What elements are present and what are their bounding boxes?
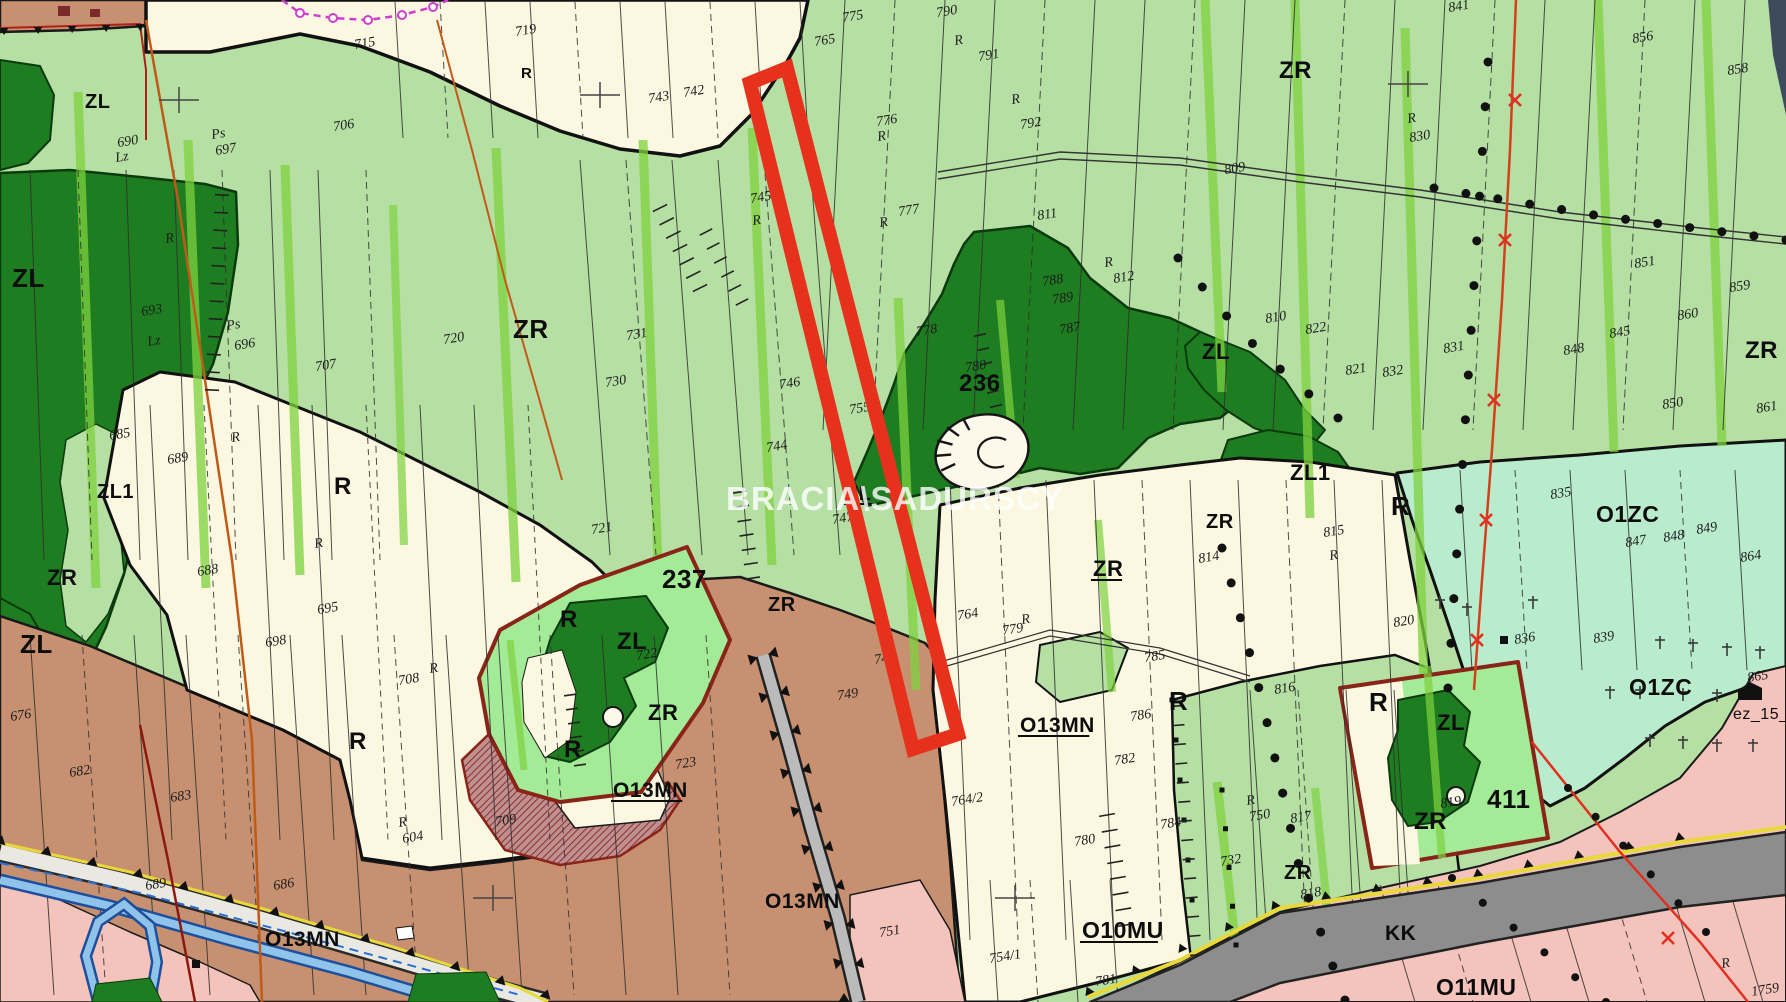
zone-code-label: KK [1385,922,1416,945]
hatch-tick [1180,820,1192,821]
tree-dots-vertical-right [1464,371,1473,380]
squares-patch-band [1223,826,1228,831]
hatch-tick [1186,897,1198,898]
tree-dots-vertical-right [1481,102,1490,111]
zone-code-label: ez_15_09 [1733,706,1786,723]
zone-code-label: R [521,65,532,82]
zone-code-label: R [1169,686,1188,716]
zone-code-label: 411 [1487,784,1530,814]
gas-line-node [329,14,337,22]
tree-dots-curve-right [1236,613,1245,622]
zone-code-label: O10MU [1082,917,1164,943]
tree-dots-path-topright [1557,205,1566,214]
tree-dots-vertical-right [1472,236,1481,245]
tree-dots-path-topright [1621,215,1630,224]
hatch-tick [212,248,226,249]
gas-line-node [429,3,437,11]
parcel-number-label: Ps [209,126,227,143]
tree-dots-path-topright [1653,219,1662,228]
tree-dots-pink-2 [1571,973,1579,981]
hatch-tick [1187,916,1199,917]
zone-code-label: R [1369,687,1388,717]
gas-line-node [364,16,372,24]
clearing-circle-symbol [603,707,623,727]
tree-dots-pink-2 [1448,874,1456,882]
hatch-tick [210,283,224,284]
hatch-tick [214,212,228,213]
zone-code-label: R [334,473,352,500]
tree-dots-curve-right [1227,578,1236,587]
tree-dots-pink-2 [1479,899,1487,907]
tree-dots-vertical-right [1461,415,1470,424]
squares-slope-band [1174,738,1179,743]
tree-dots-curve-right [1218,544,1227,553]
zone-code-label: O11MU [1436,974,1516,1000]
tree-dots-arc [1276,365,1285,374]
zone-code-label: ZR [1284,862,1312,884]
tree-dots-path-topright [1685,223,1694,232]
tree-dots-curve-right [1245,648,1254,657]
tree-dots-path-topright [1525,200,1534,209]
tree-dots-curve-right [1270,753,1279,762]
squares-patch-band [1234,943,1239,948]
tree-dots-vertical-right [1458,460,1467,469]
hatch-tick [1189,935,1201,936]
zone-code-label: O13MN [265,928,340,951]
hatch-tick [207,354,221,355]
hatch-tick [1183,859,1195,860]
tree-dots-arc [1304,389,1313,398]
parcel-number-label: Lz [113,149,130,166]
hatch-tick [208,336,222,337]
tree-dots-pink-1 [1564,784,1572,792]
zone-code-label: O13MN [1020,714,1095,737]
tree-dots-pink-1 [1647,870,1655,878]
zone-code-label: 236 [959,370,1001,397]
tree-dots-pink-1 [1702,928,1710,936]
parcel-number-label: Lz [145,333,162,350]
hatch-tick [210,301,224,302]
zone-code-label: ZR [47,565,77,590]
zone-code-label: ZR [1414,808,1447,835]
tree-dots-path-topright [1430,184,1439,193]
zone-code-label: R [564,736,582,763]
hatch-tick [206,372,220,373]
tree-dots-vertical-right [1469,281,1478,290]
tree-dots-pink-1 [1674,899,1682,907]
zone-code-label: ZL [617,628,647,655]
tree-dots-vertical-right [1455,505,1464,514]
zone-code-label: R [1391,491,1410,521]
tree-dots-curve-right [1316,928,1325,937]
hatch-tick [215,195,229,196]
tree-dots-vertical-right [1475,192,1484,201]
tree-dots-arc [1198,282,1207,291]
tree-dots-vertical-right [1444,684,1453,693]
zone-code-label: ZL1 [1290,460,1331,485]
hatch-tick [1184,878,1196,879]
hatch-tick [1178,801,1190,802]
zone-code-label: ZL [20,629,53,659]
tree-dots-path-topright [1461,189,1470,198]
hatch-tick [205,390,219,391]
hatch-tick [1172,725,1184,726]
map-canvas: 690LzPs697693Ps6966856896886956987077067… [0,0,1786,1002]
squares-patch-band [1220,788,1225,793]
hatch-tick [1177,782,1189,783]
tree-dots-path-topright [1493,194,1502,203]
hatch-tick [1181,840,1193,841]
zone-code-label: ZL1 [97,481,134,503]
zone-code-label: R [349,728,367,755]
bldg-topstrip-2 [90,9,100,17]
tree-dots-pink-2 [1510,924,1518,932]
tree-dots-vertical-right [1478,147,1487,156]
zone-code-label: O13MN [765,890,840,913]
bldg-black-2 [1500,636,1508,644]
gas-line-node [398,11,406,19]
tree-dots-arc [1248,339,1257,348]
zone-code-label: ZL [12,263,45,293]
zone-code-label: ZL [1202,339,1230,364]
tree-dots-curve-right [1263,718,1272,727]
zone-code-label: 237 [662,564,707,594]
zone-code-label: O1ZC [1629,674,1692,700]
squares-slope-band [1178,778,1183,783]
bldg-black-1 [192,960,200,968]
tree-dots-vertical-right [1484,58,1493,67]
hatch-tick [211,266,225,267]
hatch-tick [1174,744,1186,745]
parcel-number-label: 811 [1036,206,1058,224]
tree-dots-arc [1222,311,1231,320]
zone-code-label: ZR [1745,337,1778,364]
zone-code-label: ZR [1279,57,1312,84]
bldg-white [396,926,414,940]
parcel-number-label: Ps [224,317,242,334]
zone-code-label: ZR [1093,556,1123,581]
squares-patch-band [1230,904,1235,909]
zoning-map[interactable]: 690LzPs697693Ps6966856896886956987077067… [0,0,1786,1002]
hatch-tick [1190,955,1202,956]
tree-dots-pink-1 [1619,842,1627,850]
bldg-topstrip-1 [58,6,70,16]
tree-dots-curve-right [1254,683,1263,692]
hatch-tick [209,319,223,320]
tree-dots-path-topright [1589,210,1598,219]
tree-dots-arc [1174,254,1183,263]
tree-dots-path-topright [1717,227,1726,236]
tree-dots-path-topright [1749,231,1758,240]
tree-dots-pink-2 [1540,948,1548,956]
hatch-tick [1175,763,1187,764]
tree-dots-curve-right [1278,789,1287,798]
tree-dots-pink-1 [1592,813,1600,821]
quarry-symbol-tick [935,455,951,456]
green-bit-stream-2 [408,972,500,1002]
zone-code-label: ZR [768,594,796,616]
tree-dots-vertical-right [1467,326,1476,335]
tree-dots-arc [1334,414,1343,423]
zone-code-label: ZL [85,91,110,113]
tree-dots-curve-right [1328,962,1337,971]
zone-code-label: ZR [513,314,549,344]
zone-code-label: ZL [1437,710,1465,735]
tree-dots-vertical-right [1452,549,1461,558]
hatch-tick [213,230,227,231]
zone-code-label: ZR [648,700,678,725]
zone-code-label: O13MN [613,779,688,802]
zone-code-label: R [560,606,578,633]
tree-dots-vertical-right [1449,594,1458,603]
gas-line-node [296,9,304,17]
zone-code-label: ZR [1206,511,1234,533]
zone-code-label: O1ZC [1596,501,1659,527]
tree-dots-vertical-right [1446,639,1455,648]
